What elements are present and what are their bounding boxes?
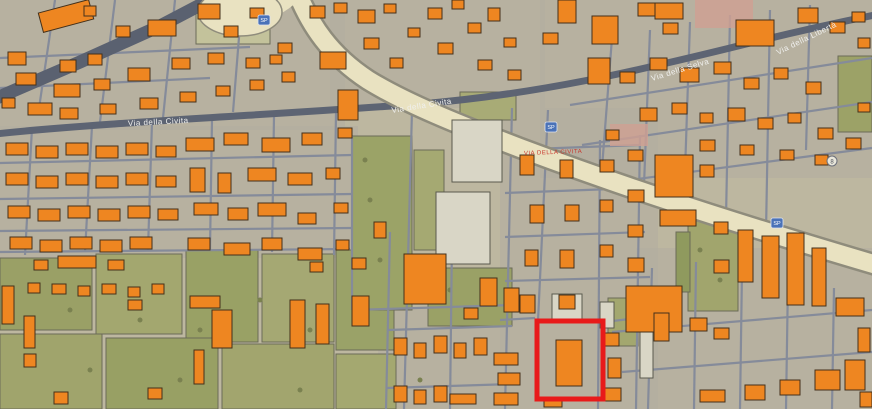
building <box>604 388 621 401</box>
building <box>738 230 753 282</box>
building <box>310 6 325 18</box>
building <box>54 84 80 97</box>
building <box>6 173 28 185</box>
building <box>98 209 120 221</box>
building <box>600 200 613 212</box>
building <box>24 316 35 348</box>
building <box>374 222 386 238</box>
building <box>96 146 118 158</box>
building <box>390 58 403 68</box>
building <box>650 58 667 70</box>
building <box>148 20 176 36</box>
building <box>102 284 116 294</box>
building <box>588 58 610 84</box>
building <box>758 118 773 129</box>
building <box>736 20 774 46</box>
building <box>818 128 833 139</box>
building <box>60 60 76 72</box>
building <box>208 53 224 64</box>
building <box>860 392 872 407</box>
building <box>326 168 340 179</box>
building <box>454 343 466 358</box>
building <box>188 238 210 250</box>
building <box>655 155 693 197</box>
building <box>858 103 870 112</box>
building <box>140 98 158 109</box>
building <box>438 43 453 54</box>
building <box>218 173 231 193</box>
building <box>559 295 575 309</box>
building <box>298 213 316 224</box>
building <box>152 284 164 294</box>
svg-text:SP: SP <box>260 18 268 24</box>
building <box>762 236 779 298</box>
building <box>846 138 861 149</box>
building <box>798 8 818 23</box>
building <box>334 3 347 13</box>
building <box>54 392 68 404</box>
building <box>774 68 788 79</box>
building <box>78 286 90 296</box>
pale-building <box>452 120 502 182</box>
map: Via della CivitaVia della CivitaVia dell… <box>0 0 872 409</box>
building <box>414 343 426 358</box>
route-shield-icon: SP <box>545 122 557 132</box>
building <box>628 150 643 161</box>
building <box>156 176 176 187</box>
building <box>525 250 538 266</box>
building <box>130 237 152 249</box>
building <box>452 0 464 9</box>
building <box>198 4 220 19</box>
building <box>560 160 573 178</box>
building <box>270 55 282 64</box>
building <box>606 130 619 140</box>
building <box>480 278 497 306</box>
building <box>278 43 292 53</box>
building <box>228 208 248 220</box>
building <box>186 138 214 151</box>
building <box>68 206 90 218</box>
building <box>504 38 516 47</box>
building <box>8 206 30 218</box>
building <box>84 6 96 16</box>
building <box>414 390 426 404</box>
building <box>224 133 248 145</box>
building <box>628 225 643 237</box>
building <box>628 190 644 202</box>
building <box>600 245 613 257</box>
building <box>434 386 447 402</box>
building <box>494 393 518 405</box>
building <box>358 10 375 23</box>
building <box>845 360 865 390</box>
building <box>194 203 218 215</box>
building <box>212 310 232 348</box>
building <box>88 54 102 65</box>
building <box>494 353 518 365</box>
building <box>94 79 110 90</box>
building <box>558 0 576 23</box>
building <box>714 222 728 234</box>
building <box>640 108 657 121</box>
building <box>690 318 707 331</box>
building <box>812 248 826 306</box>
building <box>38 209 60 221</box>
building <box>364 38 379 49</box>
building <box>780 150 794 160</box>
building <box>258 203 286 216</box>
building <box>714 260 729 273</box>
building <box>815 155 828 165</box>
building <box>320 52 346 69</box>
route-shield-icon: SP <box>258 15 270 25</box>
building <box>780 380 800 395</box>
building <box>108 260 124 270</box>
building <box>58 256 96 268</box>
building <box>450 394 476 404</box>
building <box>116 26 130 37</box>
building <box>128 68 150 81</box>
building <box>172 58 190 69</box>
building <box>858 328 870 352</box>
building <box>246 58 260 68</box>
building <box>316 304 329 344</box>
building <box>428 8 442 19</box>
building <box>248 168 276 181</box>
building <box>158 209 178 220</box>
building <box>700 165 714 177</box>
building <box>628 258 644 272</box>
building <box>728 108 745 121</box>
building <box>100 104 116 114</box>
building <box>16 73 36 85</box>
building <box>408 28 420 37</box>
building <box>180 92 196 102</box>
building <box>8 52 26 65</box>
building <box>310 262 323 272</box>
building <box>302 133 322 145</box>
building <box>224 243 250 255</box>
building <box>654 313 669 341</box>
building <box>290 300 305 348</box>
building <box>6 143 28 155</box>
building <box>28 283 40 293</box>
building <box>852 12 865 22</box>
building <box>190 296 220 308</box>
building <box>744 78 759 89</box>
building <box>714 62 731 74</box>
building <box>836 298 864 316</box>
building <box>2 286 14 324</box>
svg-text:SP: SP <box>547 125 555 131</box>
building <box>128 206 150 218</box>
building <box>262 138 290 152</box>
map-canvas[interactable]: Via della CivitaVia della CivitaVia dell… <box>0 0 872 409</box>
building <box>52 284 66 294</box>
building <box>352 296 369 326</box>
building <box>700 140 715 151</box>
pale-building <box>640 330 653 378</box>
building <box>520 155 534 175</box>
building <box>394 338 407 355</box>
building <box>745 385 765 400</box>
building <box>338 128 352 138</box>
building <box>262 238 282 250</box>
building <box>60 108 78 119</box>
building <box>672 103 687 114</box>
building <box>464 308 478 319</box>
building <box>334 203 348 213</box>
building <box>66 173 88 185</box>
building <box>700 390 725 402</box>
building <box>66 143 88 155</box>
building <box>600 160 614 172</box>
building <box>498 373 520 385</box>
building <box>604 333 619 346</box>
building <box>565 205 579 221</box>
building <box>126 173 148 185</box>
building <box>488 8 500 21</box>
building <box>660 210 696 226</box>
building <box>128 287 140 297</box>
building <box>714 328 729 339</box>
building <box>156 146 176 157</box>
building <box>404 254 446 304</box>
svg-text:SP: SP <box>773 221 781 227</box>
building <box>663 23 678 34</box>
building <box>336 240 349 250</box>
building <box>40 240 62 252</box>
building <box>655 3 683 19</box>
building <box>194 350 204 384</box>
building <box>508 70 521 80</box>
building <box>28 103 52 115</box>
building <box>478 60 492 70</box>
building <box>96 176 118 188</box>
building <box>788 113 801 123</box>
building <box>24 354 36 367</box>
building <box>352 258 366 269</box>
building <box>474 338 487 355</box>
building <box>288 173 312 185</box>
route-shield-icon: SP <box>771 218 783 228</box>
building <box>620 72 635 83</box>
building <box>282 72 295 82</box>
building <box>126 143 148 155</box>
building <box>520 295 535 313</box>
building <box>530 205 544 223</box>
building <box>10 237 32 249</box>
building <box>128 300 142 310</box>
building <box>638 3 655 16</box>
circle-badge-icon: 8 <box>827 156 837 166</box>
building <box>36 176 58 188</box>
pale-building <box>436 192 490 264</box>
building <box>556 340 582 386</box>
building <box>216 86 230 96</box>
building <box>2 98 15 108</box>
building <box>560 250 574 268</box>
building <box>224 26 238 37</box>
building <box>592 16 618 44</box>
building <box>608 358 621 378</box>
building <box>338 90 358 120</box>
building <box>298 248 322 260</box>
building <box>384 4 396 13</box>
building <box>250 80 264 90</box>
building <box>787 233 804 305</box>
building <box>394 386 407 402</box>
building <box>34 260 48 270</box>
building <box>504 288 519 312</box>
building <box>858 38 870 48</box>
building <box>70 237 92 249</box>
building <box>806 82 821 94</box>
building <box>434 336 447 353</box>
building <box>543 33 558 44</box>
building <box>190 168 205 192</box>
building <box>148 388 162 399</box>
building <box>468 23 481 33</box>
building <box>815 370 840 390</box>
building <box>740 145 754 155</box>
building <box>100 240 122 252</box>
building <box>36 146 58 158</box>
building <box>700 113 713 123</box>
